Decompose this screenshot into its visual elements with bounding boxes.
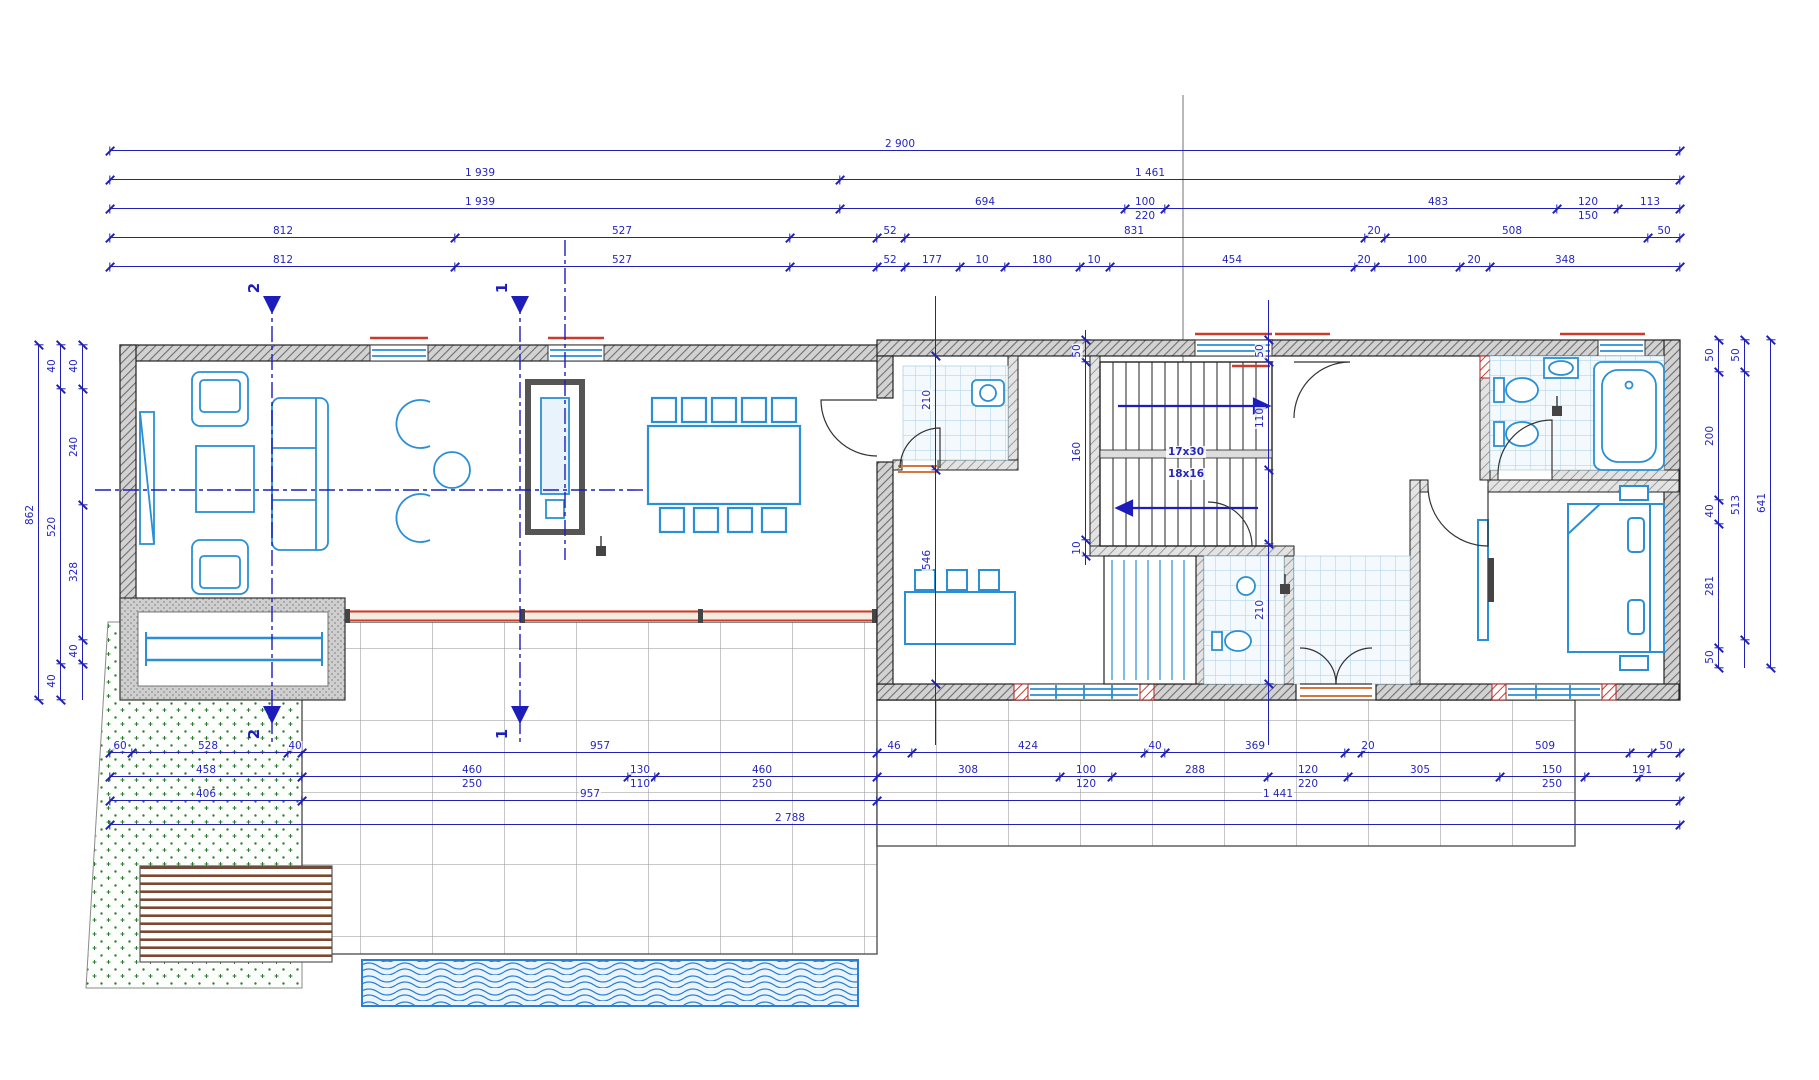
section-marker-1-top: 1 [493,283,511,293]
sliding-glass-wall [345,609,877,623]
stair-run-label-2: 18x16 [1166,468,1206,480]
wood-deck [140,866,332,962]
living-room-furniture [140,372,470,594]
dining-set [648,398,800,532]
wc-fixtures [972,380,1004,406]
section-marker-2-bottom: 2 [245,729,263,739]
fireplace-stove [528,382,582,532]
stair-run-label-1: 17x30 [1166,446,1206,458]
floor-plan-graphics [0,0,1819,1080]
section-marker-1-bottom: 1 [493,729,511,739]
swimming-pool [362,960,858,1006]
office-desk [905,570,1015,644]
window-lintels [370,334,1645,338]
section-marker-2-top: 2 [245,283,263,293]
closet [1104,556,1196,684]
bedroom-furniture [1478,486,1664,670]
floor-plan-drawing: 2 9001 9391 4611 93969410022048312015011… [0,0,1819,1080]
bay-window [120,598,345,700]
